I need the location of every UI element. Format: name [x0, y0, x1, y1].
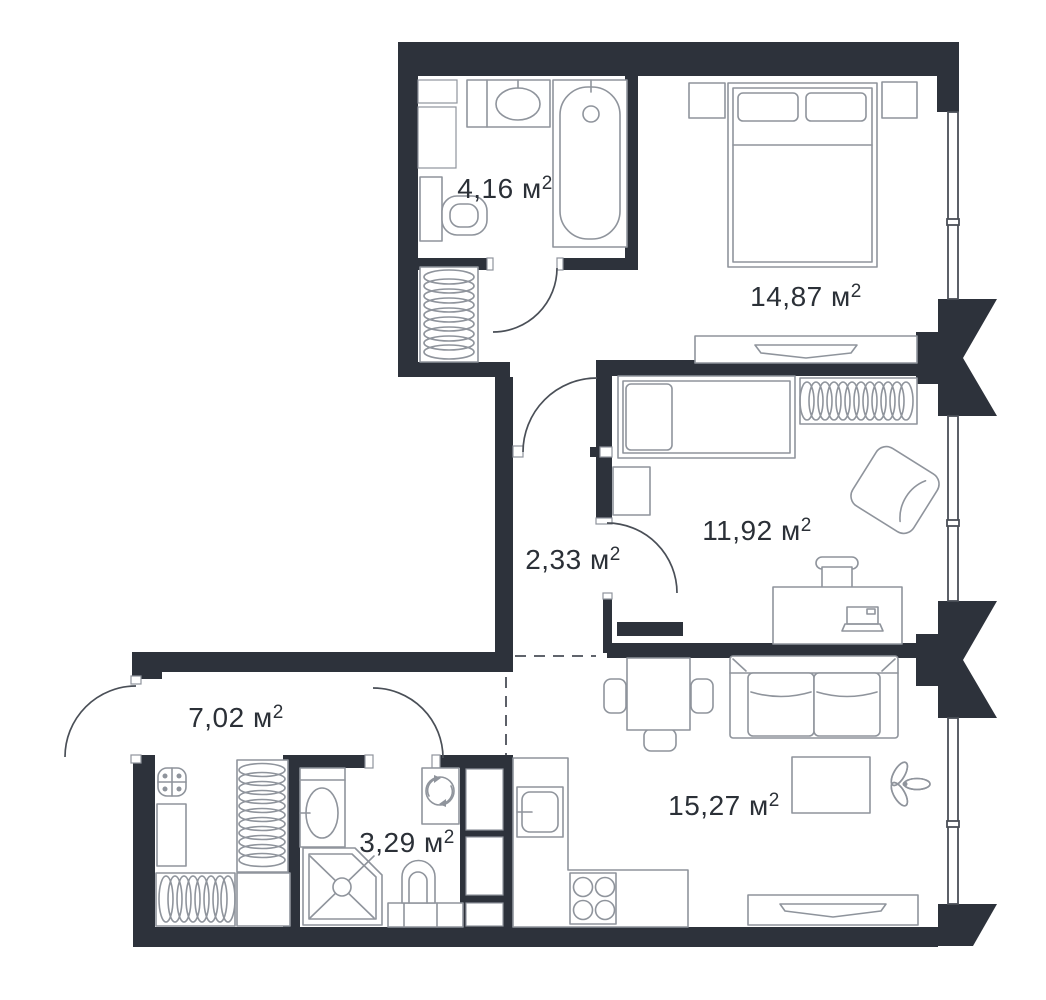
dining-table-icon: [604, 658, 713, 751]
sink-icon: [300, 768, 345, 847]
sofa-icon: [730, 656, 898, 738]
bathtub-icon: [553, 80, 627, 247]
stove-icon: [570, 873, 616, 924]
double-bed-icon: [728, 83, 877, 267]
bench-icon: [157, 804, 186, 866]
room-label-bedroom-second: 11,92 м2: [702, 515, 812, 546]
floor-plan-svg: 4,16 м2 14,87 м2 11,92 м2 2,33 м2 7,02 м…: [0, 0, 1046, 1000]
window-bedroom-second: [947, 416, 959, 601]
door-bathroom-bottom: [365, 688, 443, 768]
entry-stool-icon: [158, 768, 186, 796]
desk-icon: [773, 557, 902, 644]
room-label-bedroom-main: 14,87 м2: [750, 281, 862, 312]
zone-boundary: [506, 656, 596, 755]
nightstand-icon: [689, 83, 725, 118]
sink-icon: [467, 80, 550, 127]
pylon-2: [916, 601, 997, 718]
wardrobe-icon: [237, 760, 288, 872]
hallway-fixtures: [156, 760, 290, 926]
wardrobe-icon: [800, 378, 917, 424]
nightstand-icon: [613, 467, 650, 515]
door-bathroom-top: [487, 258, 563, 332]
chair-icon: [691, 679, 713, 713]
dresser-icon: [695, 336, 917, 363]
desk-chair-icon: [822, 567, 852, 588]
room-label-bathroom-top: 4,16 м2: [457, 173, 553, 204]
room-label-living-kitchen: 15,27 м2: [668, 790, 780, 821]
window-living: [947, 718, 959, 904]
bedroom-second-fixtures: [613, 376, 944, 644]
chair-icon: [644, 729, 676, 751]
room-label-hallway: 7,02 м2: [188, 702, 284, 733]
floor-plan: 4,16 м2 14,87 м2 11,92 м2 2,33 м2 7,02 м…: [0, 0, 1046, 1000]
cabinet-icon: [237, 873, 290, 926]
plant-icon: [888, 760, 930, 808]
doors: [65, 258, 677, 768]
single-bed-icon: [618, 376, 795, 458]
room-label-bathroom-bottom: 3,29 м2: [359, 827, 455, 858]
kitchen-counter-icon: [513, 758, 688, 927]
shoe-closet-icon: [156, 873, 235, 926]
nightstand-icon: [882, 82, 917, 118]
coffee-table-icon: [792, 757, 870, 813]
chair-icon: [604, 679, 626, 713]
door-entrance: [65, 676, 141, 763]
tv-stand-icon: [748, 895, 918, 925]
room-label-corridor: 2,33 м2: [525, 544, 621, 575]
bedroom-main-fixtures: [689, 82, 917, 363]
shower-icon: [303, 848, 382, 925]
washing-machine-icon: [422, 768, 459, 824]
windows: [947, 112, 959, 904]
kitchen-sink-icon: [517, 787, 563, 837]
coat-closet-icon: [420, 267, 478, 362]
window-bedroom-main: [947, 112, 959, 299]
pylon-1: [916, 299, 997, 416]
armchair-icon: [846, 442, 943, 538]
toilet-icon: [388, 861, 463, 928]
